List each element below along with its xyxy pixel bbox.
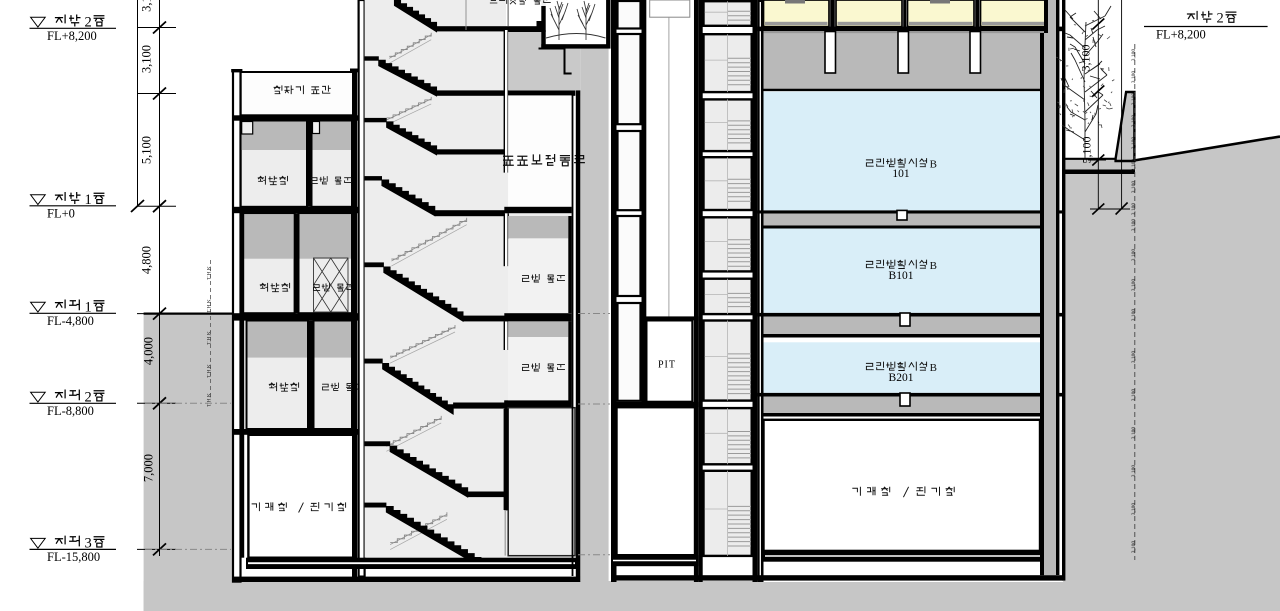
svg-text:FL+8,200: FL+8,200 — [1156, 28, 1206, 42]
svg-text:FL-4,800: FL-4,800 — [47, 314, 94, 328]
svg-text:B201: B201 — [889, 372, 914, 384]
svg-text:B: B — [930, 362, 937, 374]
svg-text:3,100: 3,100 — [1079, 45, 1093, 72]
svg-text:T.H.K: T.H.K — [207, 331, 213, 345]
svg-text:3,100: 3,100 — [1131, 219, 1137, 232]
svg-text:3,1: 3,1 — [140, 0, 154, 12]
svg-text:T.H.K: T.H.K — [207, 266, 213, 280]
svg-text:3,100: 3,100 — [1131, 203, 1137, 216]
svg-text:B101: B101 — [889, 270, 914, 282]
svg-text:3,100: 3,100 — [1131, 159, 1137, 172]
svg-text:3,100: 3,100 — [1131, 49, 1137, 62]
svg-text:5,100: 5,100 — [140, 136, 154, 164]
svg-text:T.H.K: T.H.K — [207, 299, 213, 313]
svg-text:3,100: 3,100 — [140, 45, 154, 73]
svg-text:3,100: 3,100 — [1131, 541, 1137, 554]
svg-text:3,100: 3,100 — [1131, 427, 1137, 440]
svg-text:7,000: 7,000 — [142, 454, 156, 482]
svg-text:5,100: 5,100 — [1080, 137, 1094, 164]
svg-text:101: 101 — [892, 168, 910, 180]
svg-text:3,100: 3,100 — [1131, 115, 1137, 128]
svg-text:3,100: 3,100 — [1131, 389, 1137, 402]
svg-text:FL-8,800: FL-8,800 — [47, 404, 94, 418]
svg-text:3,100: 3,100 — [1131, 93, 1137, 106]
svg-text:3,100: 3,100 — [1131, 309, 1137, 322]
svg-text:3,100: 3,100 — [1131, 465, 1137, 478]
svg-text:3,100: 3,100 — [1131, 71, 1137, 84]
svg-text:3,100: 3,100 — [1131, 181, 1137, 194]
svg-text:T.H.K: T.H.K — [207, 364, 213, 378]
svg-text:FL+8,200: FL+8,200 — [47, 29, 97, 43]
svg-text:3,100: 3,100 — [1131, 503, 1137, 516]
svg-text:3,100: 3,100 — [1131, 351, 1137, 364]
svg-text:3,100: 3,100 — [1131, 279, 1137, 292]
svg-text:FL+0: FL+0 — [47, 206, 75, 220]
svg-text:4,800: 4,800 — [140, 246, 154, 274]
svg-text:B: B — [930, 260, 937, 272]
svg-text:T.H.K: T.H.K — [207, 393, 213, 407]
svg-text:2: 2 — [1216, 11, 1223, 27]
svg-text:PIT: PIT — [658, 360, 676, 371]
svg-text:3,100: 3,100 — [1131, 137, 1137, 150]
svg-text:4,000: 4,000 — [142, 337, 156, 365]
svg-text:3,100: 3,100 — [1131, 249, 1137, 262]
svg-text:B: B — [930, 159, 937, 171]
svg-text:FL-15,800: FL-15,800 — [47, 550, 100, 564]
